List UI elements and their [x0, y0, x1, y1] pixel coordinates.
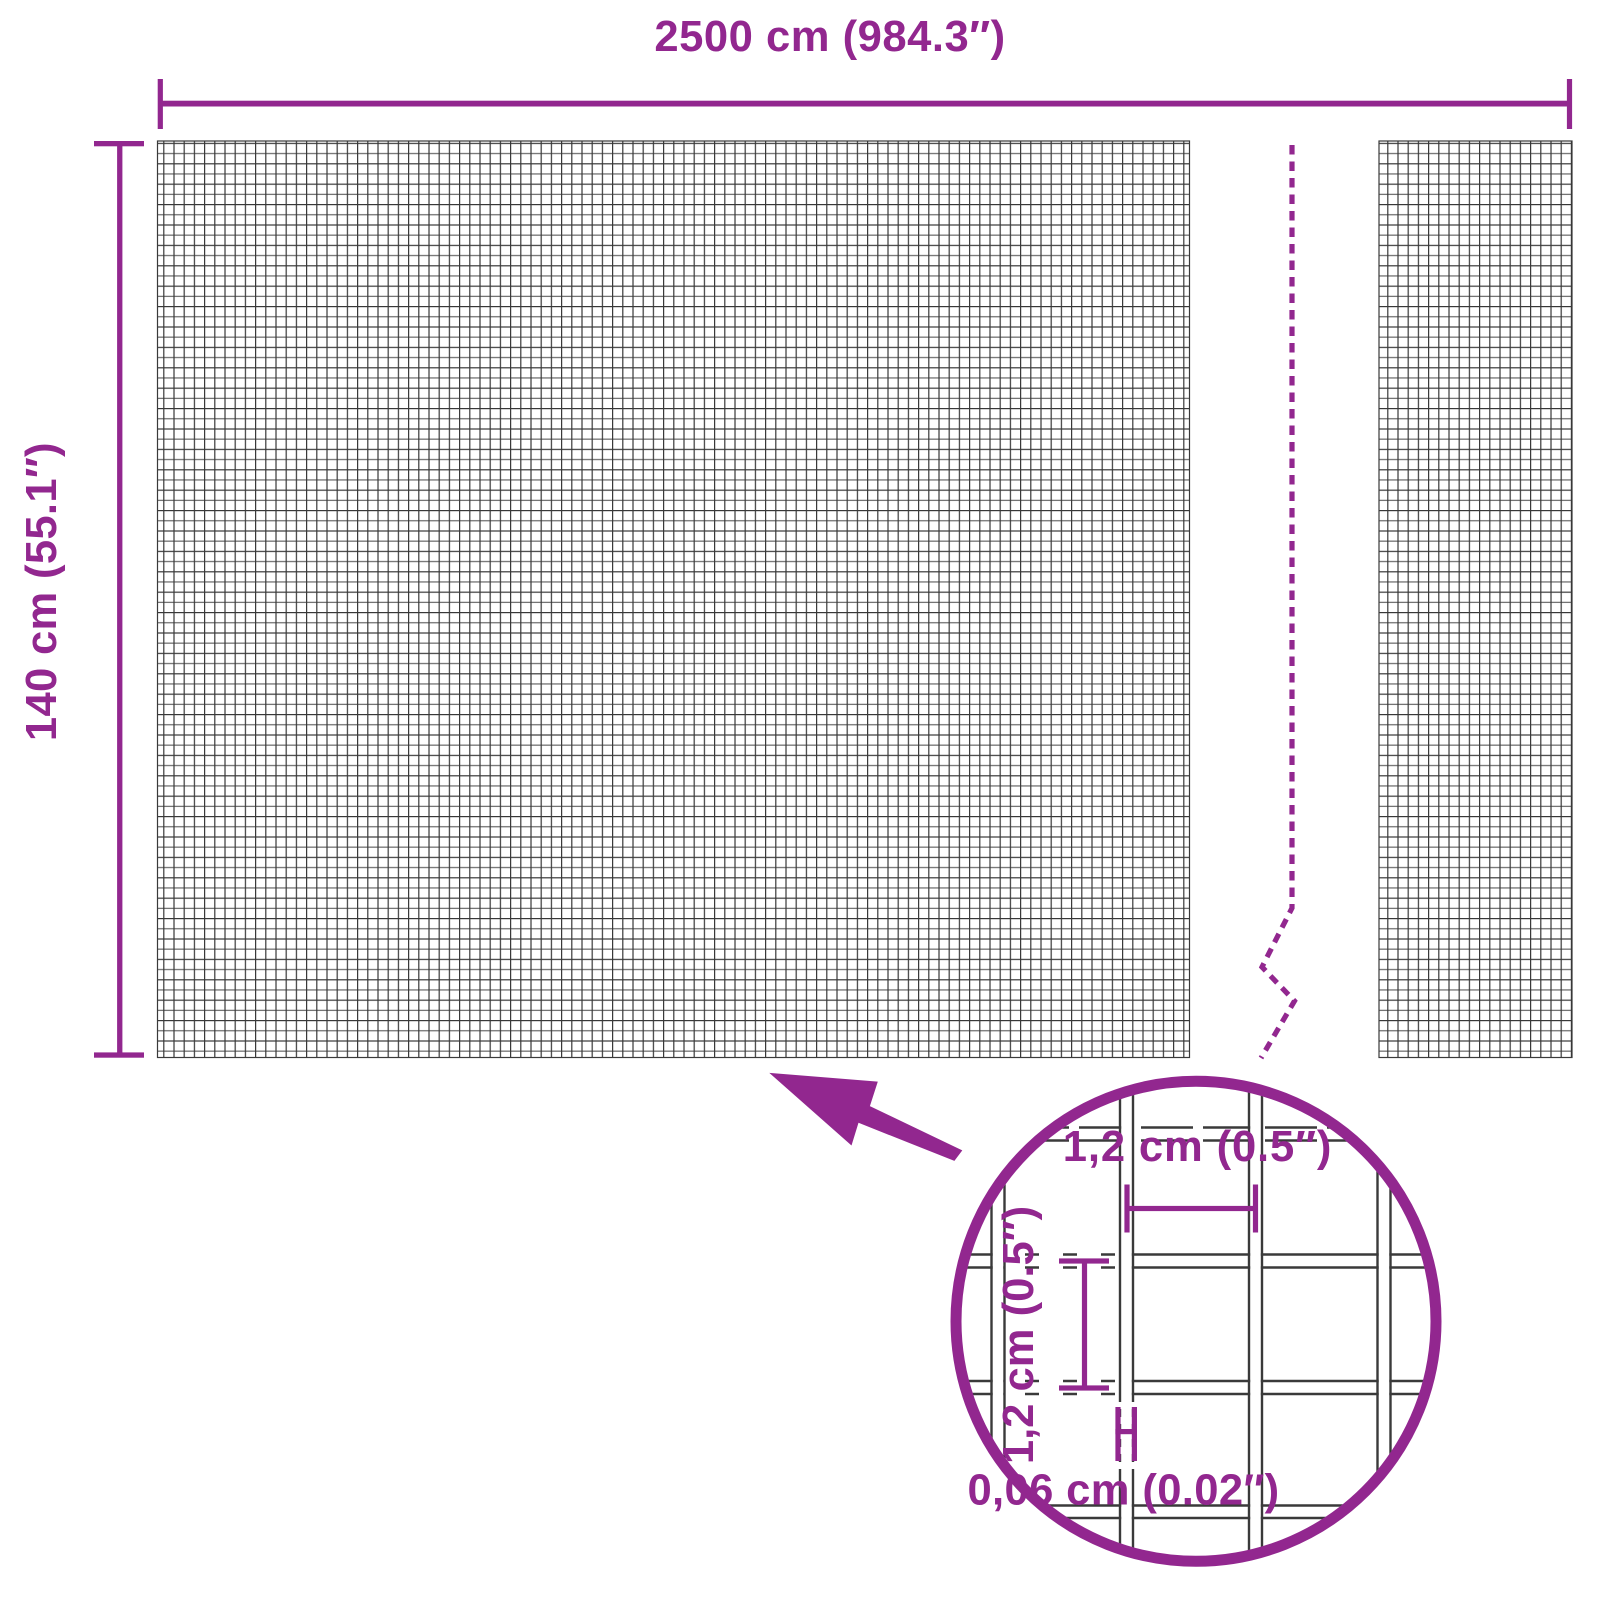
svg-text:140 cm (55.1″): 140 cm (55.1″): [18, 442, 66, 741]
svg-text:1,2 cm (0.5″): 1,2 cm (0.5″): [995, 1206, 1043, 1464]
svg-text:1,2 cm (0.5″): 1,2 cm (0.5″): [1063, 1123, 1332, 1171]
svg-text:2500 cm (984.3″): 2500 cm (984.3″): [654, 13, 1005, 61]
svg-text:0,06 cm (0.02″): 0,06 cm (0.02″): [967, 1467, 1279, 1515]
